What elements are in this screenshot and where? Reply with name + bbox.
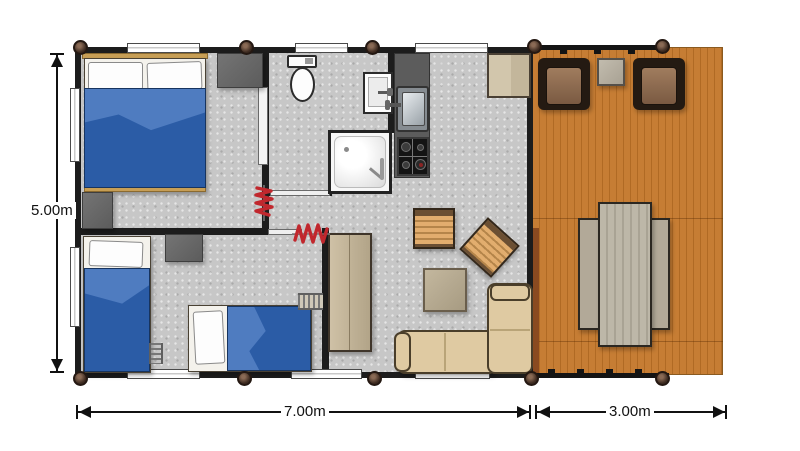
dimension-end-bar bbox=[535, 405, 537, 419]
dimension-end-bar bbox=[76, 405, 78, 419]
width-dimension-label: 7.00m bbox=[281, 403, 329, 420]
arrow-up-icon bbox=[51, 55, 63, 67]
pillow bbox=[147, 61, 203, 91]
corner-post-icon bbox=[365, 40, 380, 55]
shower-rail bbox=[380, 158, 384, 180]
corner-post-icon bbox=[73, 40, 88, 55]
slatted-chair-icon bbox=[413, 208, 455, 249]
railing-post bbox=[560, 50, 567, 54]
sliding-door-bathroom bbox=[270, 190, 330, 196]
pillow bbox=[88, 62, 143, 90]
deck-railing-top bbox=[533, 45, 669, 50]
duvet bbox=[84, 88, 206, 188]
arrow-left-icon bbox=[79, 406, 91, 418]
window-top-bathroom bbox=[295, 43, 348, 53]
corner-post-icon bbox=[237, 371, 252, 386]
door-spring-icon bbox=[250, 184, 278, 222]
hob-burner-knob bbox=[419, 163, 423, 167]
dimension-end-bar bbox=[529, 405, 531, 419]
hob-burner bbox=[417, 144, 424, 151]
railing-post bbox=[606, 369, 613, 373]
floor-plan-canvas: 5.00m 7.00m 3.00m bbox=[0, 0, 800, 451]
window-left-bedroom1 bbox=[70, 88, 80, 162]
railing-post bbox=[635, 369, 642, 373]
dimension-end-bar bbox=[50, 371, 64, 373]
toilet-flush-button bbox=[305, 58, 313, 64]
wardrobe-icon bbox=[217, 53, 263, 88]
window-top-bedroom1 bbox=[127, 43, 200, 53]
sink-basin bbox=[402, 92, 425, 126]
deck-railing-bottom bbox=[533, 373, 669, 378]
corner-post-icon bbox=[524, 371, 539, 386]
deck-side-table-icon bbox=[597, 58, 625, 86]
sliding-door-bedroom1 bbox=[258, 87, 268, 165]
picnic-table-icon bbox=[598, 202, 652, 347]
sink-faucet-handle bbox=[385, 100, 390, 110]
sofa-armrest bbox=[394, 332, 411, 372]
tall-cabinet-icon bbox=[328, 233, 372, 352]
sofa-headrest bbox=[490, 284, 530, 301]
washbasin-faucet-base bbox=[387, 88, 393, 96]
hob-burner bbox=[402, 161, 410, 169]
ladder-icon bbox=[149, 343, 163, 364]
railing-post bbox=[577, 369, 584, 373]
corner-sofa-icon bbox=[397, 330, 497, 374]
window-top-kitchen bbox=[415, 43, 488, 53]
wardrobe-icon bbox=[165, 234, 203, 262]
corner-post-icon bbox=[655, 39, 670, 54]
pillow bbox=[193, 310, 226, 364]
corner-post-icon bbox=[239, 40, 254, 55]
deck-armchair-icon bbox=[538, 58, 590, 110]
corner-post-icon bbox=[527, 39, 542, 54]
sofa-seam bbox=[444, 333, 446, 371]
hob-grid-line bbox=[399, 156, 427, 157]
railing-post bbox=[594, 50, 601, 54]
toilet-bowl bbox=[290, 67, 315, 102]
pillow bbox=[89, 240, 144, 268]
shower-tray bbox=[334, 136, 386, 188]
door-spring-icon bbox=[291, 220, 331, 248]
sofa-seam bbox=[490, 329, 530, 331]
ladder-icon bbox=[298, 293, 323, 310]
shower-drain bbox=[344, 147, 349, 152]
dresser-icon bbox=[82, 192, 113, 229]
deck-armchair-icon bbox=[633, 58, 685, 110]
arrow-left-icon bbox=[538, 406, 550, 418]
deck-door-threshold bbox=[533, 228, 539, 375]
dimension-end-bar bbox=[725, 405, 727, 419]
height-dimension-label: 5.00m bbox=[28, 202, 76, 219]
corner-post-icon bbox=[655, 371, 670, 386]
terrace-dimension-label: 3.00m bbox=[606, 403, 654, 420]
arrow-right-icon bbox=[713, 406, 725, 418]
picnic-bench-icon bbox=[578, 218, 600, 330]
cabinet-seam bbox=[349, 235, 350, 350]
fridge-cabinet-icon bbox=[487, 53, 531, 98]
picnic-bench-icon bbox=[650, 218, 670, 330]
corner-post-icon bbox=[367, 371, 382, 386]
hob-burner bbox=[401, 142, 411, 152]
duvet bbox=[227, 306, 311, 371]
railing-post bbox=[548, 369, 555, 373]
arrow-down-icon bbox=[51, 359, 63, 371]
duvet bbox=[84, 268, 150, 372]
arrow-right-icon bbox=[517, 406, 529, 418]
coffee-table-icon bbox=[423, 268, 467, 312]
corner-post-icon bbox=[73, 371, 88, 386]
railing-post bbox=[628, 50, 635, 54]
window-left-bedroom2 bbox=[70, 247, 80, 327]
